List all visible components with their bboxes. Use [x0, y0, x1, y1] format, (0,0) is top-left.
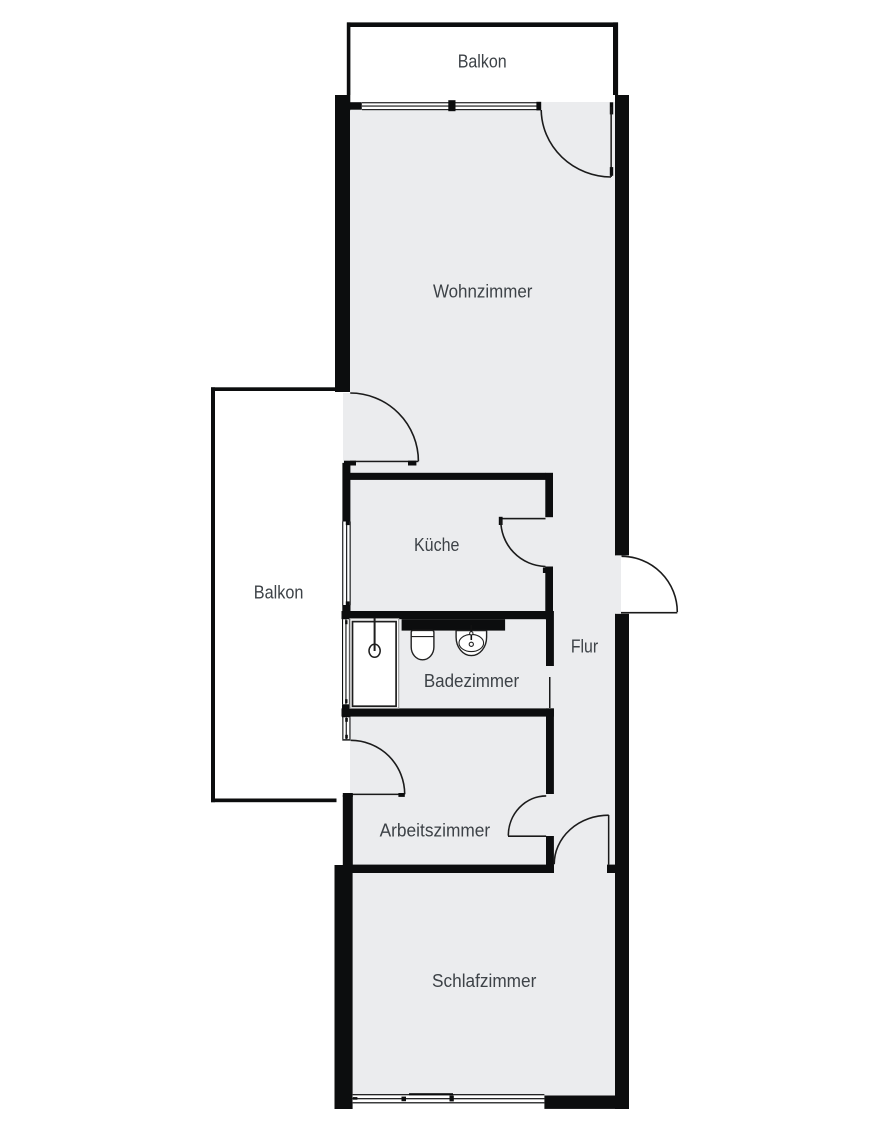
- svg-text:Badezimmer: Badezimmer: [424, 670, 519, 691]
- svg-text:Küche: Küche: [414, 534, 459, 555]
- svg-text:Wohnzimmer: Wohnzimmer: [433, 280, 533, 301]
- svg-text:Flur: Flur: [571, 636, 598, 657]
- svg-text:Balkon: Balkon: [254, 582, 304, 603]
- svg-text:Arbeitszimmer: Arbeitszimmer: [380, 820, 491, 841]
- svg-text:Schlafzimmer: Schlafzimmer: [432, 970, 536, 991]
- svg-text:Balkon: Balkon: [458, 51, 507, 72]
